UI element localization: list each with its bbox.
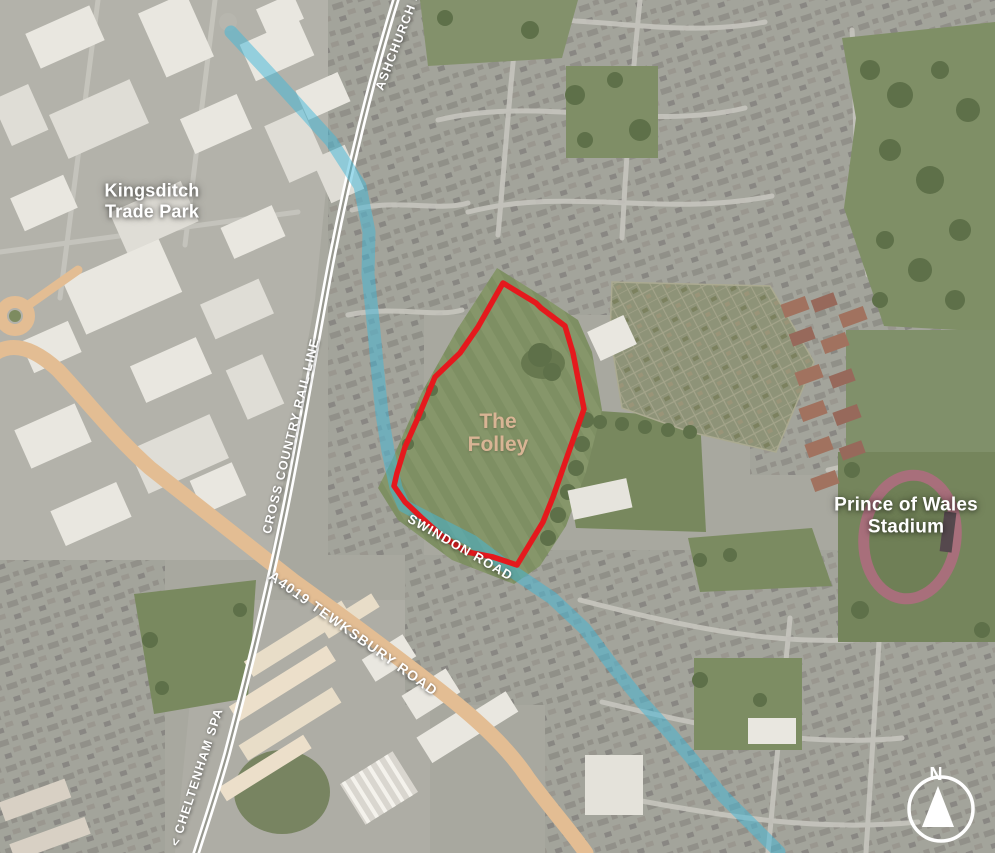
compass-north-label: N (930, 764, 943, 784)
label-prince-of-wales-stadium: Prince of Wales Stadium (834, 494, 978, 537)
trade-park-line1: Kingsditch (105, 180, 200, 201)
stadium-line2: Stadium (834, 516, 978, 538)
site-line1: The (468, 410, 529, 433)
stadium-line1: Prince of Wales (834, 494, 978, 516)
label-the-folley: The Folley (468, 410, 529, 456)
aerial-map: N Kingsditch Trade Park The Folley Princ… (0, 0, 995, 853)
trade-park-line2: Trade Park (105, 201, 200, 222)
site-line2: Folley (468, 433, 529, 456)
label-kingsditch-trade-park: Kingsditch Trade Park (105, 180, 200, 221)
